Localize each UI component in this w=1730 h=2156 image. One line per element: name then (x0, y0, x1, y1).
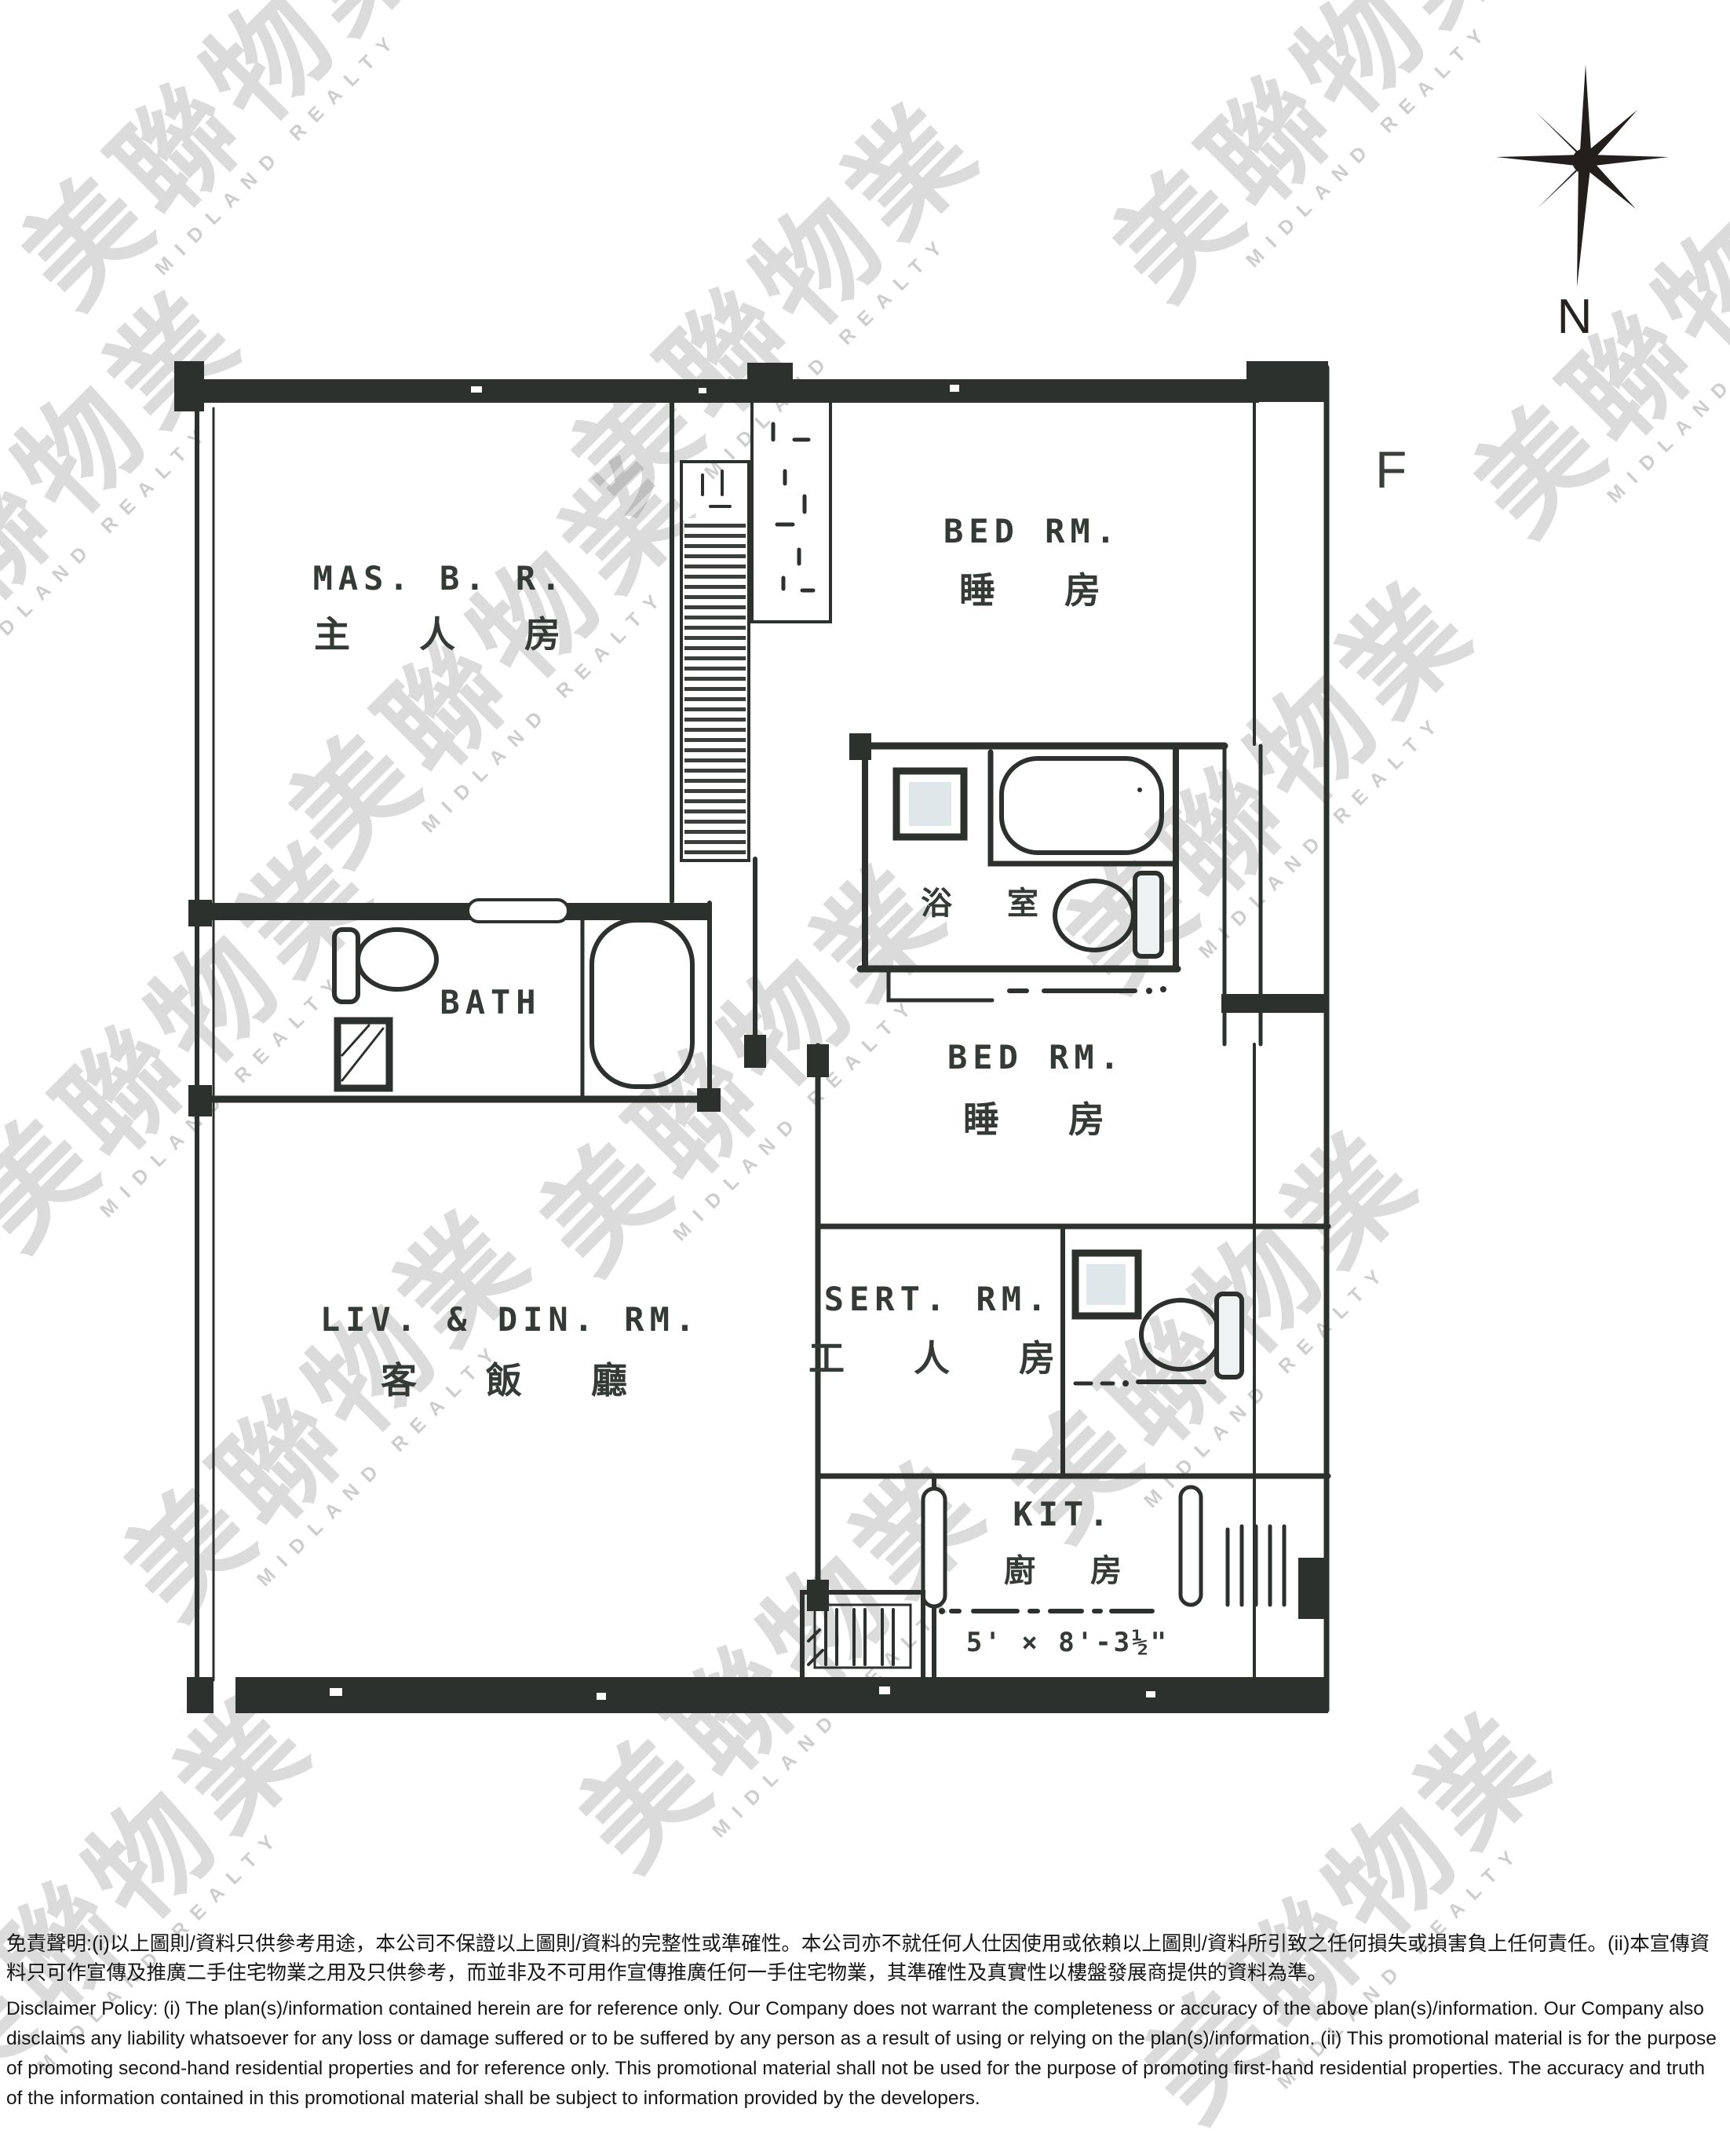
room-label-master-bedroom-zh: 主 人 房 (314, 606, 589, 658)
floor-plan-drawing (0, 0, 1730, 2086)
room-label-kitchen-zh: 廚 房 (1004, 1545, 1144, 1591)
wardrobe-closets (681, 397, 830, 861)
disclaimer-text-english: Disclaimer Policy: (i) The plan(s)/infor… (6, 1994, 1725, 2114)
room-label-living-dining-zh: 客 飯 廳 (381, 1352, 655, 1404)
room-label-bedroom-middle-zh: 睡 房 (963, 1091, 1133, 1143)
toilet-icon (1141, 1300, 1220, 1369)
kitchen-dimension-label: 5' × 8'-3½" (966, 1627, 1169, 1658)
room-label-kitchen-en: KIT. (1013, 1495, 1114, 1533)
flat-letter-label: F (1375, 440, 1408, 499)
room-label-bedroom-top-zh: 睡 房 (959, 562, 1129, 614)
room-label-living-dining-en: LIV. & DIN. RM. (320, 1300, 700, 1339)
room-label-servant-room-en: SERT. RM. (824, 1280, 1053, 1318)
compass-north-label: N (1557, 289, 1593, 345)
room-label-servant-room-zh: 工 人 房 (808, 1330, 1083, 1382)
toilet-icon (358, 930, 436, 989)
bedroom2-door-marks (889, 972, 1166, 1000)
bathtub-icon (1002, 758, 1162, 853)
room-label-bath-en: BATH (440, 983, 541, 1021)
disclaimer-text-chinese: 免責聲明:(i)以上圖則/資料只供參考用途，本公司不保證以上圖則/資料的完整性或… (6, 1930, 1725, 1988)
room-label-bedroom-top-en: BED RM. (943, 512, 1121, 550)
room-label-bedroom-middle-en: BED RM. (947, 1038, 1125, 1076)
compass-star-icon (1496, 64, 1669, 287)
toilet-icon (1055, 881, 1133, 950)
room-label-master-bedroom-en: MAS. B. R. (313, 559, 567, 597)
middle-bathroom-fixtures (896, 752, 1174, 956)
bathtub-icon (592, 920, 692, 1087)
room-label-bathroom-middle-zh: 浴 室 (921, 878, 1060, 923)
servant-bathroom-fixtures (1075, 1253, 1242, 1387)
scan-page: { "watermark": { "cjk": "美聯物業", "latin":… (0, 0, 1730, 2086)
